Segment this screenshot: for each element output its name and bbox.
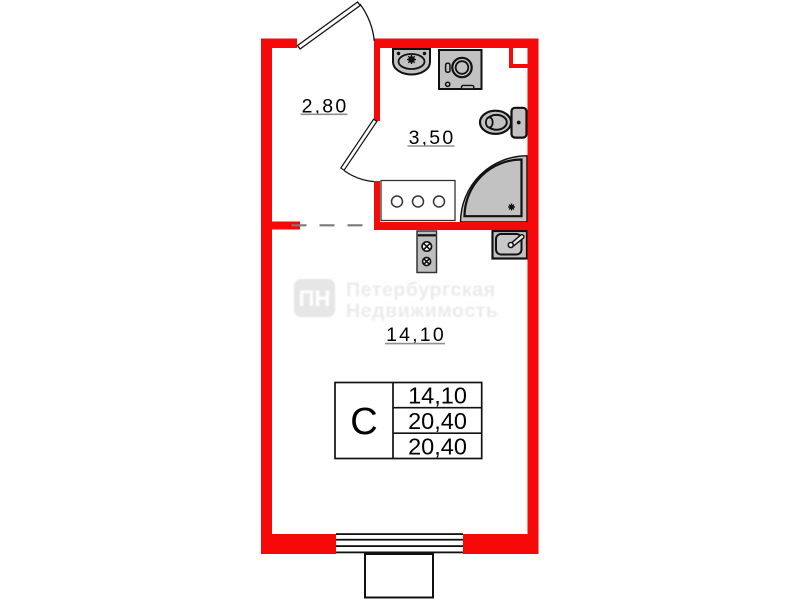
svg-text:Недвижимость: Недвижимость	[346, 300, 499, 322]
svg-text:20,40: 20,40	[408, 434, 467, 460]
svg-text:Петербургская: Петербургская	[346, 279, 496, 301]
svg-text:14,10: 14,10	[408, 383, 467, 409]
svg-text:С: С	[350, 401, 377, 443]
svg-text:20,40: 20,40	[408, 408, 467, 434]
svg-text:ПН: ПН	[299, 286, 331, 311]
svg-text:14,10: 14,10	[386, 324, 446, 346]
